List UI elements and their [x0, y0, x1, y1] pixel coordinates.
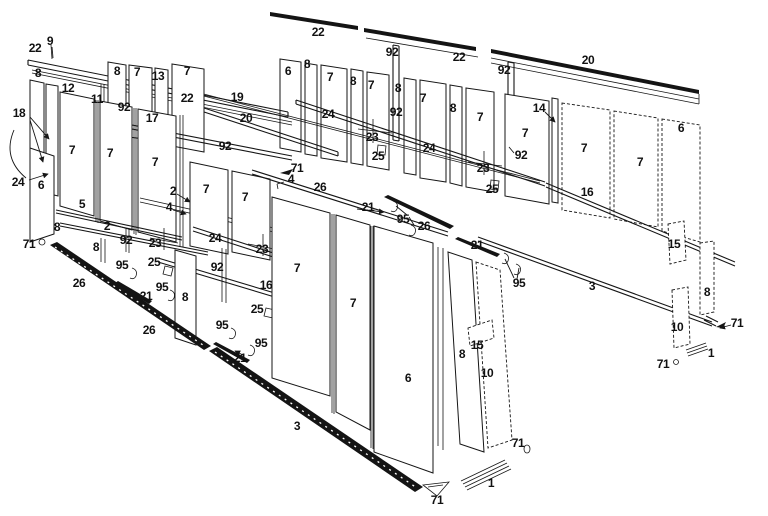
diagram-canvas — [0, 0, 768, 516]
panel-7 — [466, 88, 494, 192]
fastener-71 — [39, 239, 45, 245]
top-rail-20 — [491, 49, 699, 94]
panel-8 — [700, 241, 714, 315]
panel-7 — [60, 92, 94, 216]
bracket-71 — [423, 482, 449, 496]
post-92 — [222, 248, 226, 303]
strip-21 — [384, 195, 454, 229]
panel-8 — [450, 85, 462, 186]
hook-95 — [248, 345, 255, 356]
post-92 — [393, 45, 399, 141]
fastener-71 — [674, 360, 679, 365]
parts-diagram-page: 2298121192171887137221920927777724652248… — [0, 0, 768, 516]
strip-1 — [461, 460, 511, 490]
panel-6 — [374, 226, 433, 473]
panel-10 — [672, 287, 690, 348]
panel-6 — [30, 148, 54, 242]
panel-7 — [505, 94, 549, 204]
hook-95 — [514, 264, 521, 275]
panel-15 — [668, 221, 686, 264]
strip-1 — [686, 343, 708, 356]
panel-7 — [420, 80, 446, 182]
hook-95 — [130, 268, 137, 279]
panel-7 — [614, 111, 658, 227]
fastener-71 — [524, 445, 530, 453]
hook-95 — [168, 290, 175, 301]
flap-arc — [10, 130, 26, 178]
panel-7 — [272, 197, 330, 396]
bracket-71 — [280, 169, 293, 175]
panel-8 — [404, 78, 416, 175]
hook-95 — [409, 225, 416, 236]
hook-95 — [502, 253, 509, 264]
panel-8 — [351, 69, 363, 165]
post-8 — [101, 238, 105, 263]
panel-7 — [562, 103, 610, 218]
top-rail-22 — [270, 12, 358, 30]
panel-7 — [172, 64, 204, 152]
panel-7 — [100, 101, 132, 230]
panel-7 — [138, 109, 176, 242]
panel-7 — [336, 215, 370, 430]
bracket-4 — [277, 182, 284, 189]
hook-25 — [163, 266, 173, 276]
hook-95 — [229, 328, 236, 339]
panel-7 — [367, 72, 389, 170]
